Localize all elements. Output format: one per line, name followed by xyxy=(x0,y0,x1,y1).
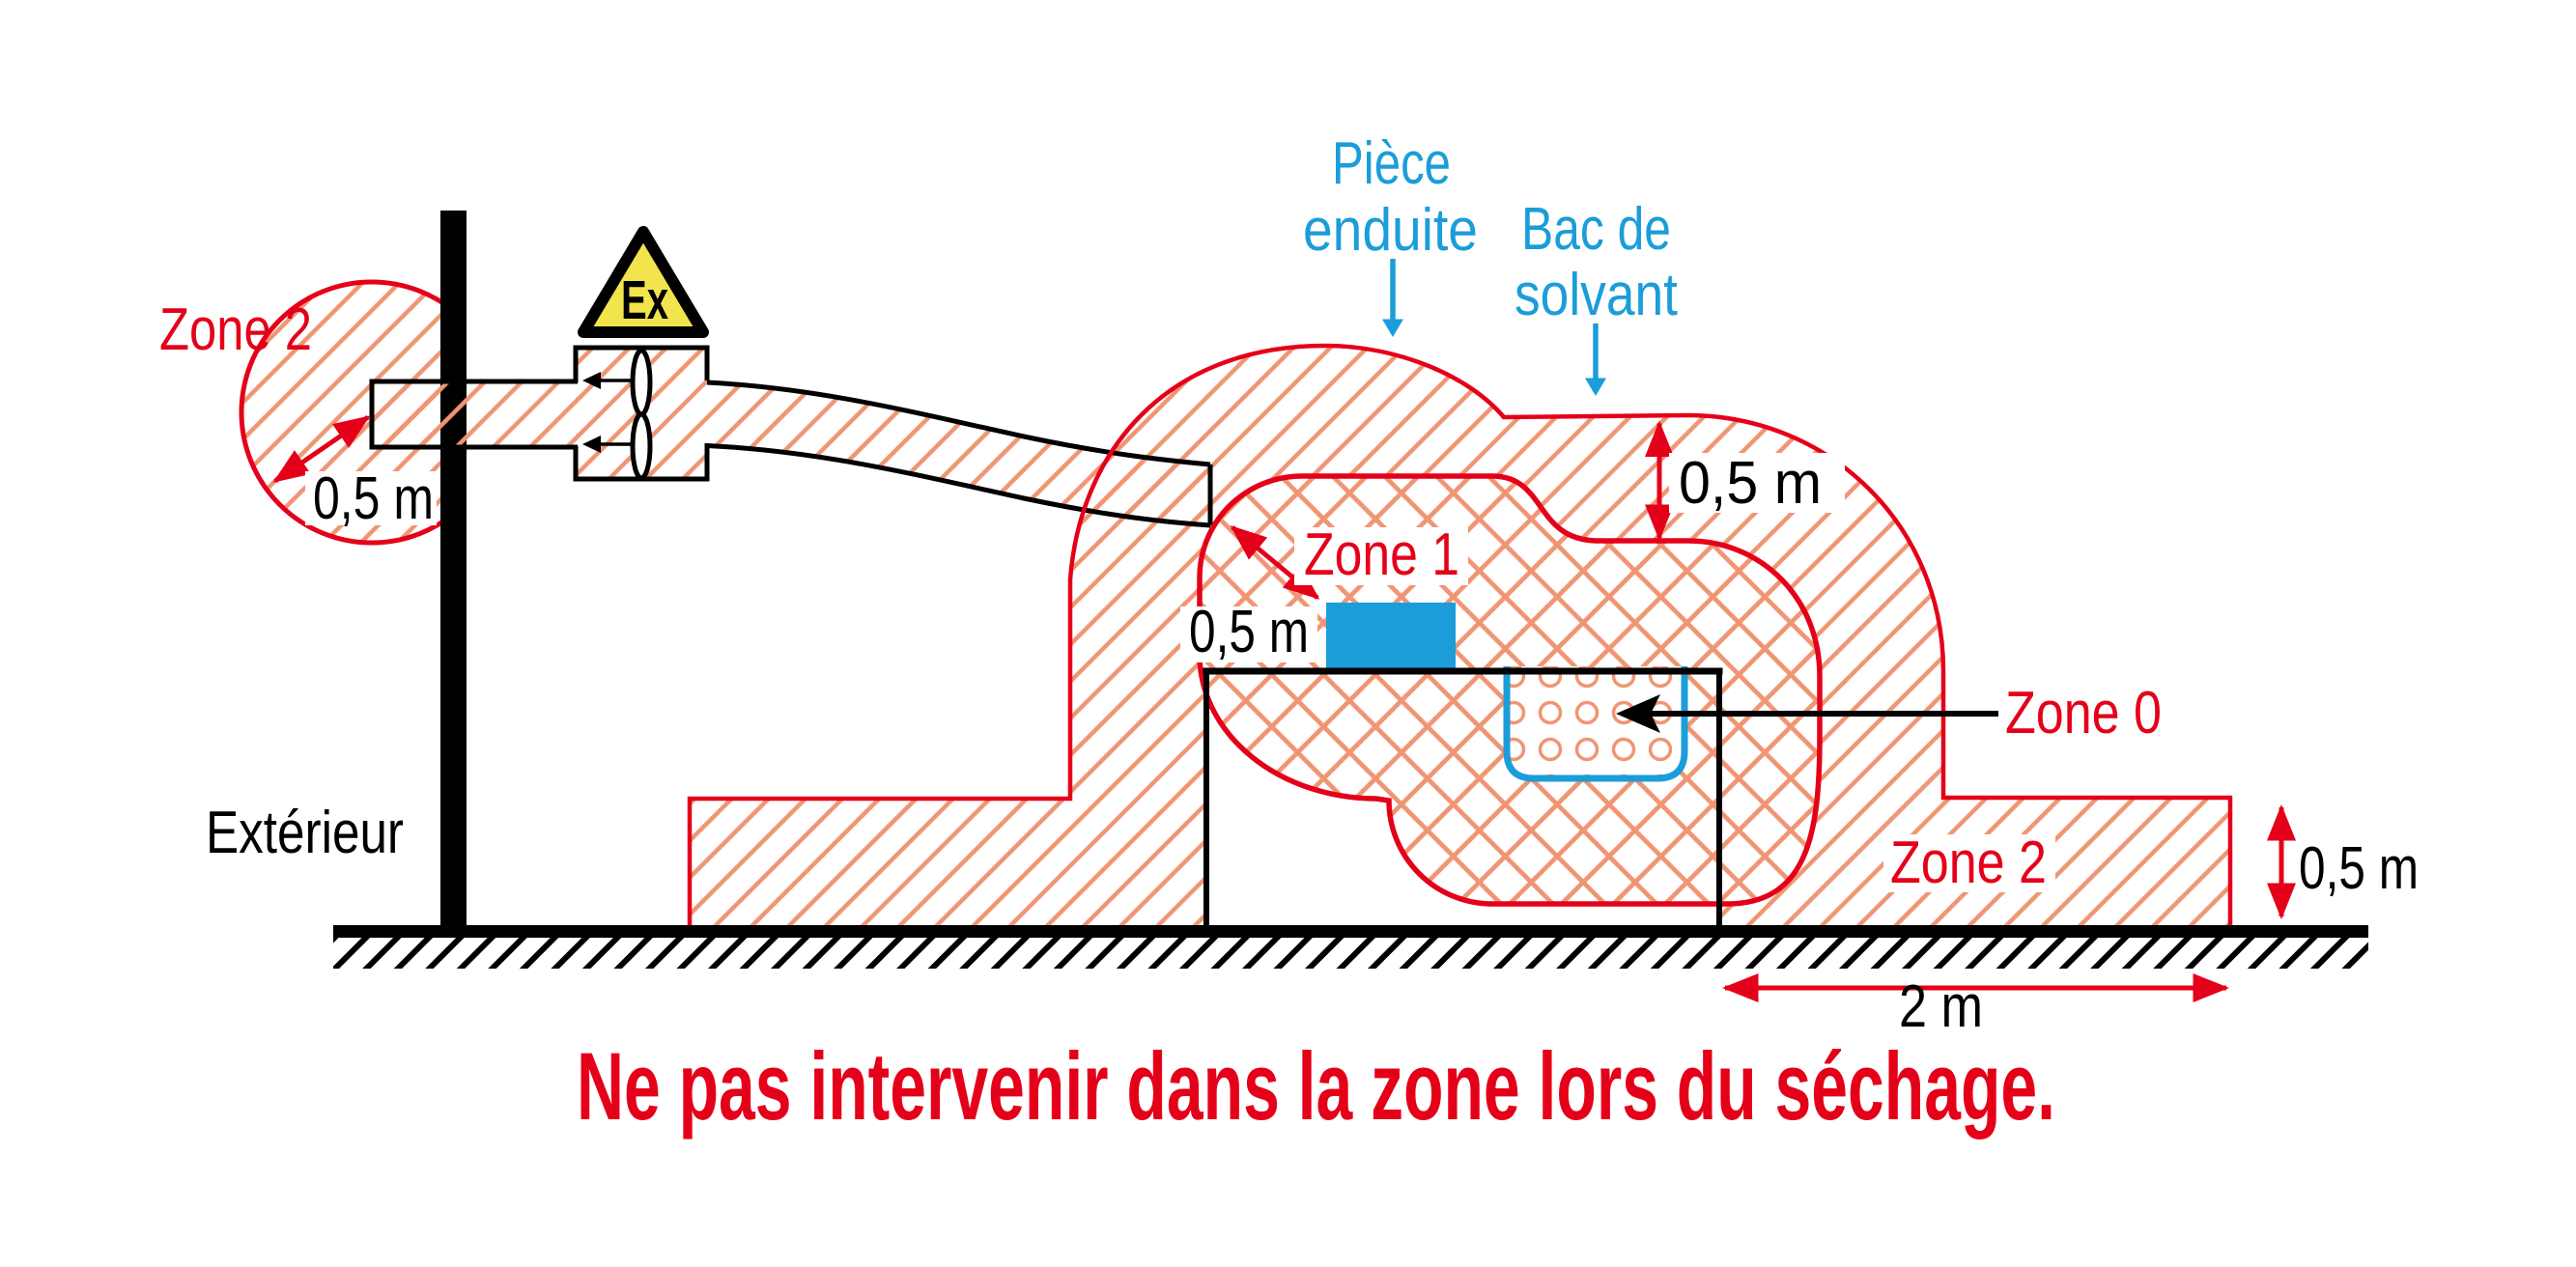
svg-text:enduite: enduite xyxy=(1303,197,1478,264)
svg-text:Zone 0: Zone 0 xyxy=(2005,680,2162,746)
svg-text:Ne pas intervenir dans la zone: Ne pas intervenir dans la zone lors du s… xyxy=(577,1032,2055,1140)
svg-text:0,5 m: 0,5 m xyxy=(1679,450,1822,517)
svg-text:Zone 2: Zone 2 xyxy=(159,296,312,363)
svg-text:0,5 m: 0,5 m xyxy=(1189,599,1309,665)
svg-text:Zone 2: Zone 2 xyxy=(1890,830,2047,896)
svg-text:Extérieur: Extérieur xyxy=(206,800,404,866)
svg-text:0,5 m: 0,5 m xyxy=(313,465,434,532)
svg-text:Zone 1: Zone 1 xyxy=(1304,521,1459,588)
svg-text:Bac de: Bac de xyxy=(1521,196,1671,263)
svg-text:solvant: solvant xyxy=(1514,262,1678,328)
svg-text:2 m: 2 m xyxy=(1899,973,1983,1040)
svg-text:Pièce: Pièce xyxy=(1332,130,1451,197)
svg-text:Ex: Ex xyxy=(621,269,668,331)
svg-text:0,5 m: 0,5 m xyxy=(2299,835,2419,902)
